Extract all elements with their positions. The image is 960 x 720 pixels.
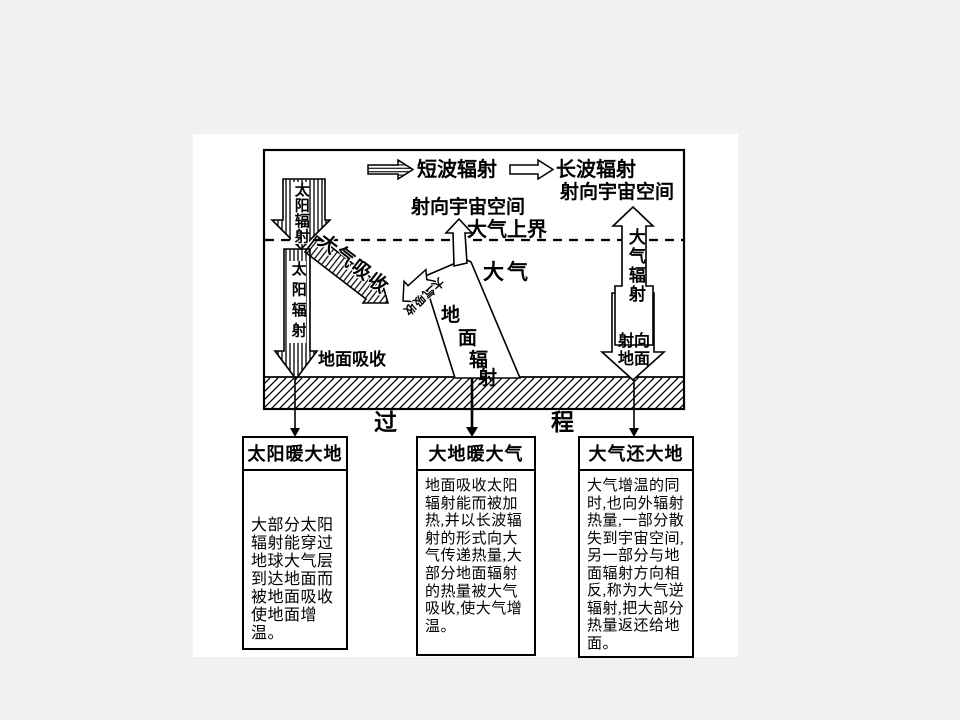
process-label-right: 程 bbox=[551, 411, 574, 435]
atmosphere-label: 大气 bbox=[483, 261, 531, 283]
process-box-body: 地面吸收太阳 辐射能而被加 热,并以长波辐 射的形式向大 气传递热量,大 部分地… bbox=[418, 471, 534, 636]
process-box-title: 太阳暖大地 bbox=[244, 438, 346, 471]
process-box-body: 大气增温的同 时,也向外辐射 热量,一部分散 失到宇宙空间, 另一部分与地 面辐… bbox=[580, 471, 692, 653]
process-box-body: 大部分太阳 辐射能穿过 地球大气层 到达地面而 被地面吸收 使地面增温。 bbox=[244, 471, 346, 643]
solar-radiation-upper-label: 太阳辐射 bbox=[291, 182, 309, 244]
ground-hatch-band bbox=[265, 377, 683, 408]
to-space-mid-label: 射向宇宙空间 bbox=[411, 198, 525, 218]
shortwave-legend-arrow-icon bbox=[368, 160, 413, 179]
process-box-sun-warms-ground: 太阳暖大地 大部分太阳 辐射能穿过 地球大气层 到达地面而 被地面吸收 使地面增… bbox=[242, 436, 348, 650]
process-box-title: 大地暖大气 bbox=[418, 438, 534, 471]
atmosphere-top-label: 大气上界 bbox=[467, 220, 547, 241]
process-label-left: 过 bbox=[374, 411, 397, 435]
solar-radiation-lower-label: 太阳辐射 bbox=[288, 261, 306, 343]
shortwave-legend-label: 短波辐射 bbox=[417, 160, 497, 181]
process-box-ground-warms-air: 大地暖大气 地面吸收太阳 辐射能而被加 热,并以长波辐 射的形式向大 气传递热量… bbox=[416, 436, 536, 656]
atmosphere-radiation-label: 大气辐射 bbox=[625, 228, 645, 304]
longwave-legend-arrow-icon bbox=[510, 160, 553, 179]
ground-absorption-label: 地面吸收 bbox=[318, 351, 386, 369]
to-space-right-label: 射向宇宙空间 bbox=[560, 183, 674, 203]
process-box-title: 大气还大地 bbox=[580, 438, 692, 471]
slide-page: 短波辐射 长波辐射 射向宇宙空间 射向宇宙空间 大气上界 大气 太阳辐射 太阳辐… bbox=[0, 0, 960, 720]
to-ground-label: 射向地面 bbox=[618, 333, 654, 369]
process-box-air-returns-ground: 大气还大地 大气增温的同 时,也向外辐射 热量,一部分散 失到宇宙空间, 另一部… bbox=[578, 436, 694, 658]
longwave-legend-label: 长波辐射 bbox=[556, 160, 636, 181]
